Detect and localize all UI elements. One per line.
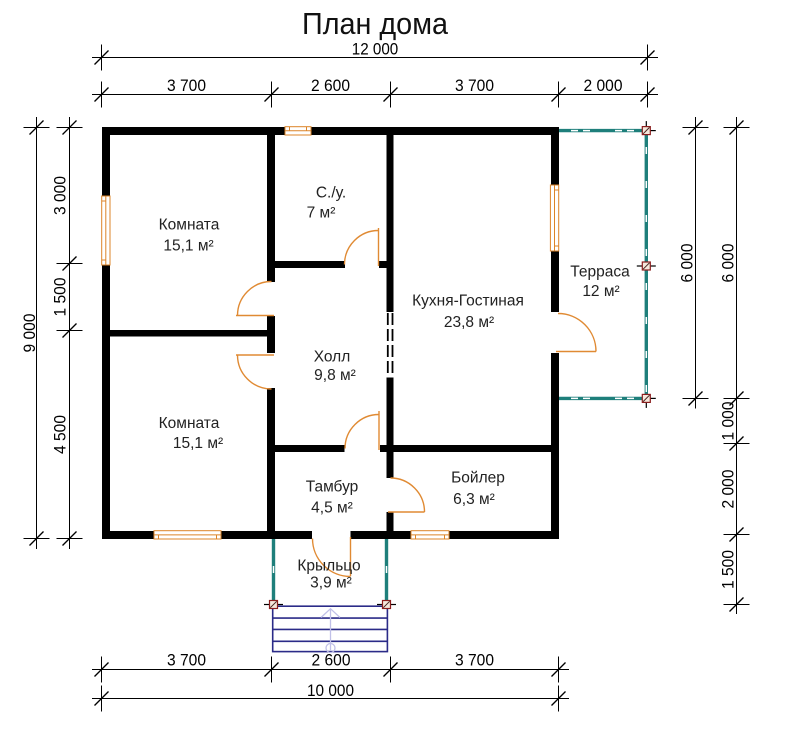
- svg-text:3 000: 3 000: [52, 176, 70, 215]
- svg-text:Терраса: Терраса: [570, 264, 630, 281]
- svg-text:6 000: 6 000: [720, 244, 738, 283]
- svg-text:9,8 м²: 9,8 м²: [314, 367, 356, 384]
- svg-text:9 000: 9 000: [21, 314, 39, 353]
- svg-text:План дома: План дома: [302, 6, 449, 41]
- svg-text:Комната: Комната: [159, 217, 220, 234]
- svg-text:7 м²: 7 м²: [307, 205, 336, 222]
- svg-text:3,9 м²: 3,9 м²: [310, 575, 352, 592]
- svg-text:15,1 м²: 15,1 м²: [173, 435, 223, 452]
- svg-text:3 700: 3 700: [455, 652, 494, 670]
- svg-text:15,1 м²: 15,1 м²: [163, 238, 213, 255]
- svg-text:С./у.: С./у.: [316, 185, 346, 202]
- svg-text:2 600: 2 600: [312, 652, 351, 670]
- svg-text:2 000: 2 000: [720, 470, 738, 509]
- svg-text:6 000: 6 000: [679, 244, 697, 283]
- svg-text:Комната: Комната: [159, 415, 220, 432]
- svg-text:23,8 м²: 23,8 м²: [444, 314, 494, 331]
- svg-text:2 000: 2 000: [584, 77, 623, 95]
- svg-text:1 500: 1 500: [52, 278, 70, 317]
- svg-text:3 700: 3 700: [455, 77, 494, 95]
- svg-text:Тамбур: Тамбур: [306, 479, 359, 496]
- svg-text:Бойлер: Бойлер: [451, 470, 505, 487]
- svg-text:12 000: 12 000: [352, 41, 399, 59]
- svg-text:1 000: 1 000: [720, 402, 738, 441]
- svg-text:4,5 м²: 4,5 м²: [311, 500, 353, 517]
- svg-text:3 700: 3 700: [167, 77, 206, 95]
- svg-text:3 700: 3 700: [167, 652, 206, 670]
- svg-text:10 000: 10 000: [307, 682, 354, 700]
- svg-text:Холл: Холл: [314, 349, 351, 366]
- svg-text:Крыльцо: Крыльцо: [297, 558, 360, 575]
- svg-text:12 м²: 12 м²: [582, 283, 619, 300]
- svg-text:Кухня-Гостиная: Кухня-Гостиная: [412, 293, 524, 310]
- svg-text:6,3 м²: 6,3 м²: [453, 491, 495, 508]
- svg-text:4 500: 4 500: [52, 415, 70, 454]
- svg-text:2 600: 2 600: [311, 77, 350, 95]
- svg-text:1 500: 1 500: [720, 550, 738, 589]
